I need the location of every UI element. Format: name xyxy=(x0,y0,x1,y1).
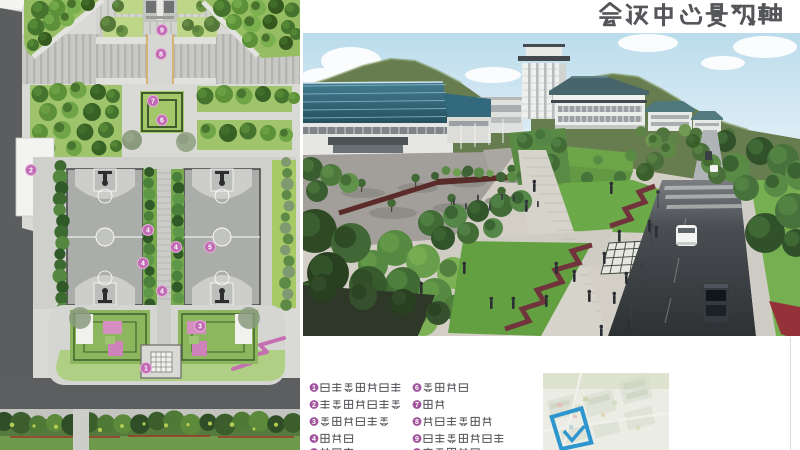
svg-text:6: 6 xyxy=(160,118,164,125)
svg-text:8: 8 xyxy=(159,52,163,59)
svg-text:7: 7 xyxy=(151,99,155,106)
svg-text:1: 1 xyxy=(312,385,316,392)
svg-text:9: 9 xyxy=(415,436,419,443)
svg-text:7: 7 xyxy=(415,402,419,409)
svg-text:4: 4 xyxy=(160,289,164,296)
svg-text:3: 3 xyxy=(312,419,316,426)
svg-text:4: 4 xyxy=(141,261,145,268)
svg-text:4: 4 xyxy=(146,228,150,235)
svg-text:5: 5 xyxy=(208,245,212,252)
svg-text:1: 1 xyxy=(144,366,148,373)
svg-text:8: 8 xyxy=(415,419,419,426)
svg-text:4: 4 xyxy=(312,436,316,443)
svg-text:2: 2 xyxy=(312,402,316,409)
svg-text:2: 2 xyxy=(29,168,33,175)
svg-text:3: 3 xyxy=(198,324,202,331)
svg-text:4: 4 xyxy=(174,245,178,252)
svg-text:6: 6 xyxy=(415,385,419,392)
svg-text:9: 9 xyxy=(160,28,164,35)
